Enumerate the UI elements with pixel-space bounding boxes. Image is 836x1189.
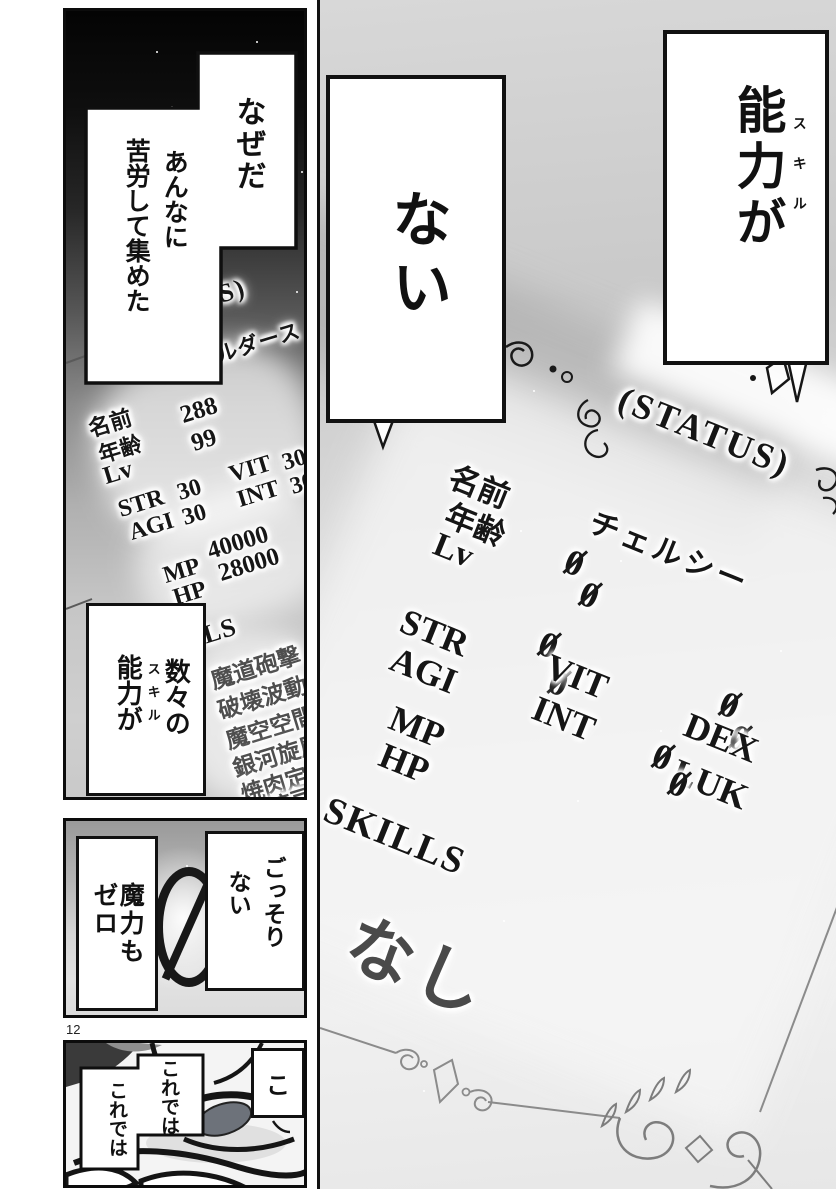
korede-col1: これでは [158, 1059, 178, 1135]
page-number: 12 [66, 1022, 80, 1037]
speech-box-maryoku: 魔力もゼロ [76, 836, 158, 1011]
gossori-col1: ごっそり [260, 856, 284, 948]
manga-page: (STATUS) 名前 チェルシー 年齢 0 Lv 0 STR 0 AGI 0 … [0, 0, 836, 1189]
speech-skill-text: 能力が [731, 84, 784, 252]
speech-nai-text: ない [385, 188, 448, 324]
speech-box-ko: こ [251, 1048, 305, 1118]
panel-flashback-status: (STATUS) ヴェルダース 名前 288 年齢 99 Lv STR 30 A… [63, 8, 307, 800]
kazu-col1: 数々の [161, 658, 188, 736]
maryoku-text: 魔力もゼロ [91, 881, 144, 966]
gossori-col2: ない [225, 870, 249, 916]
speech-skill-furigana: スキル [791, 116, 806, 236]
naze-col1: なぜだ [232, 96, 264, 192]
speech-box-skill: 能力が スキル [663, 30, 829, 365]
panel-reaction-face: これでは これでは こ [63, 1040, 307, 1188]
korede-col2: これでは [106, 1081, 126, 1157]
naze-col3: 苦労して集めた [123, 138, 149, 313]
ko-text: こ [266, 1066, 290, 1101]
panel-status-main: (STATUS) 名前 チェルシー 年齢 0 Lv 0 STR 0 AGI 0 … [317, 0, 836, 1189]
kazu-furigana: スキル [145, 662, 159, 731]
speech-box-gossori: ごっそり ない [205, 831, 305, 991]
panel-zero-magic: 魔力もゼロ ごっそり ない [63, 818, 307, 1018]
speech-box-kazu: 数々の 能力が スキル [86, 603, 206, 796]
naze-col2: あんなに [161, 149, 187, 249]
speech-box-nai: ない [326, 75, 506, 423]
kazu-col2: 能力が [113, 654, 140, 732]
